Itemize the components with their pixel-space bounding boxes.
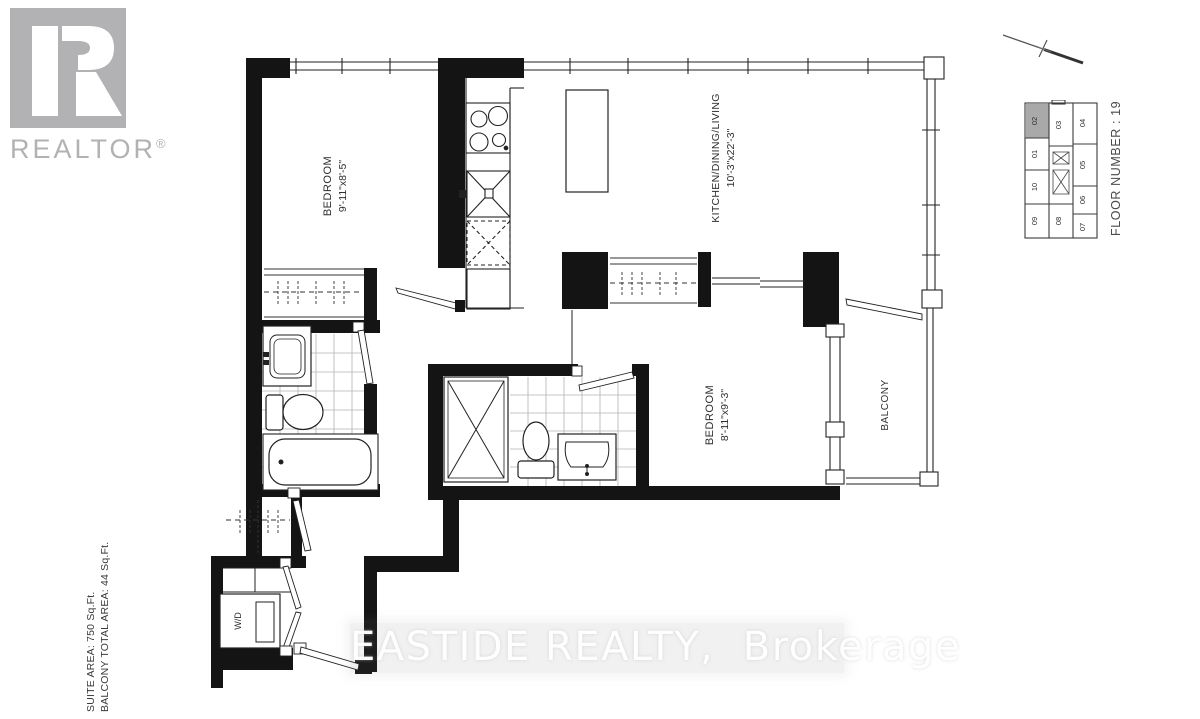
bedroom1-door-swing <box>396 288 465 312</box>
brokerage-watermark: EASTIDE REALTY, Brokerage <box>350 623 844 673</box>
kitchen-dining-living-dims: 10'-3"x22'-3" <box>725 128 737 187</box>
bedroom1-label: BEDROOM <box>322 156 334 216</box>
balcony-door-swing <box>846 299 922 320</box>
bathroom1-vanity-sink <box>263 326 311 386</box>
bedroom2-label: BEDROOM <box>704 385 716 445</box>
bathroom2-toilet <box>518 422 554 478</box>
floor-plan: BEDROOM 9'-11"x8'-5" KITCHEN/DINING/LIVI… <box>0 0 1200 719</box>
bathroom1-toilet <box>266 395 323 431</box>
bathroom2-door-swing <box>572 366 634 391</box>
window-wall <box>290 57 944 486</box>
bedroom1-closet <box>264 269 364 317</box>
floor-plan-page: REALTOR® SUITE AREA: 750 Sq.Ft. BALCONY … <box>0 0 1200 719</box>
kitchen-island <box>566 90 608 192</box>
balcony-label: BALCONY <box>880 379 891 430</box>
kitchen-cabinet <box>467 269 510 309</box>
washer-dryer-closet <box>220 568 291 648</box>
washer-dryer-label: W/D <box>233 612 243 630</box>
kitchen-dining-living-label: KITCHEN/DINING/LIVING <box>710 93 722 222</box>
bedroom1-dims: 9'-11"x8'-5" <box>337 160 349 212</box>
bedroom2-closet <box>610 258 697 303</box>
bathroom2-vanity-sink <box>558 434 616 480</box>
stove <box>466 103 510 153</box>
room-labels: BEDROOM 9'-11"x8'-5" KITCHEN/DINING/LIVI… <box>233 93 891 629</box>
dishwasher <box>467 221 510 265</box>
bathtub <box>263 434 378 490</box>
bifold-doors <box>280 558 301 656</box>
shower <box>444 377 508 482</box>
bedroom2-dims: 8'-11"x9'-3" <box>719 389 731 441</box>
sliding-door <box>826 324 844 484</box>
kitchen-sink <box>459 171 510 217</box>
